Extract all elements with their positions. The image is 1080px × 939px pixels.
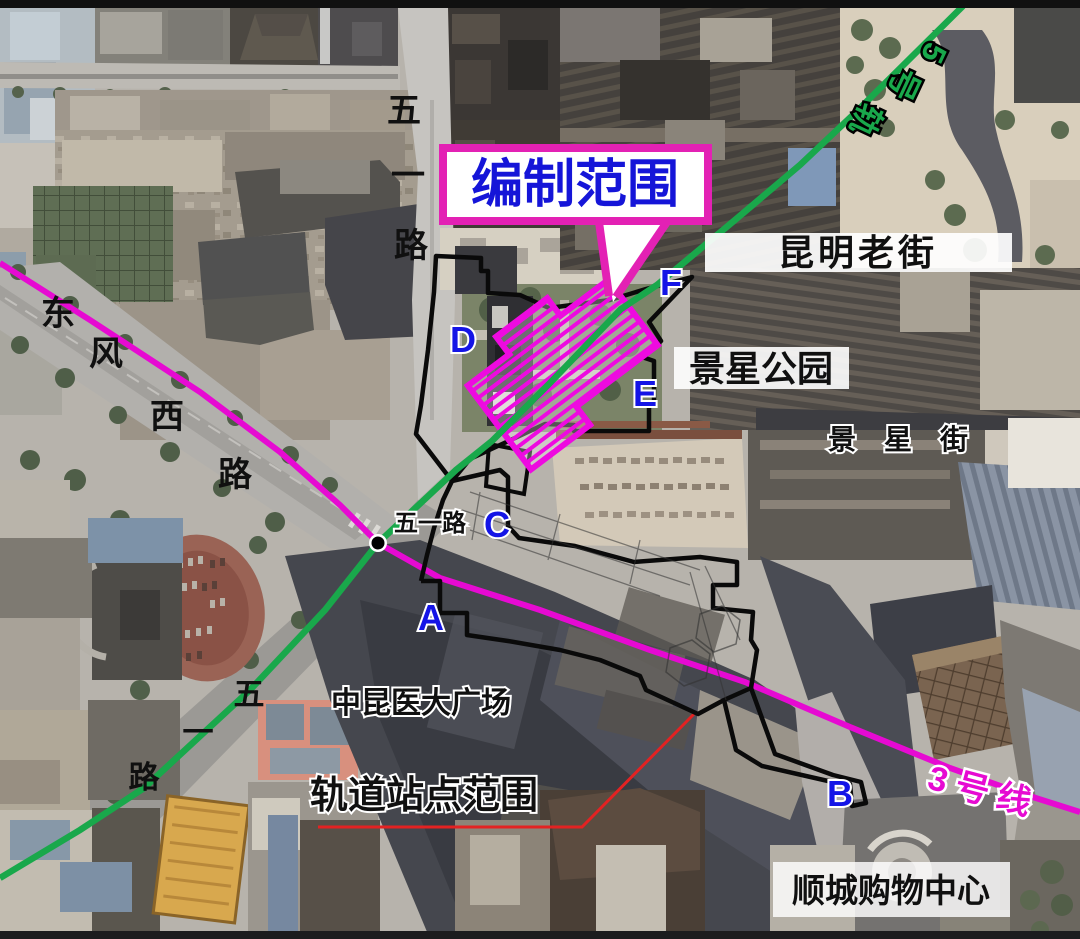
svg-text:东: 东 bbox=[41, 294, 75, 333]
svg-text:路: 路 bbox=[129, 760, 161, 795]
svg-text:E: E bbox=[633, 373, 657, 414]
svg-text:A: A bbox=[418, 597, 444, 638]
svg-text:C: C bbox=[484, 504, 510, 545]
svg-text:轨道站点范围: 轨道站点范围 bbox=[310, 775, 538, 817]
svg-text:一: 一 bbox=[183, 715, 214, 750]
svg-text:F: F bbox=[660, 262, 682, 303]
svg-text:路: 路 bbox=[394, 227, 429, 265]
svg-text:D: D bbox=[450, 319, 476, 360]
svg-text:五: 五 bbox=[234, 677, 265, 712]
svg-text:编制范围: 编制范围 bbox=[471, 156, 679, 214]
svg-text:景星街: 景星街 bbox=[828, 423, 996, 455]
svg-text:五: 五 bbox=[387, 92, 421, 130]
svg-text:五一路: 五一路 bbox=[394, 509, 467, 537]
svg-text:路: 路 bbox=[218, 456, 253, 494]
svg-text:B: B bbox=[827, 773, 853, 814]
svg-text:昆明老街: 昆明老街 bbox=[778, 232, 938, 273]
svg-text:风: 风 bbox=[89, 335, 123, 373]
svg-text:西: 西 bbox=[150, 398, 184, 436]
svg-text:景星公园: 景星公园 bbox=[689, 348, 833, 389]
svg-text:一: 一 bbox=[391, 157, 425, 195]
svg-text:顺城购物中心: 顺城购物中心 bbox=[792, 872, 990, 909]
svg-text:中昆医大广场: 中昆医大广场 bbox=[331, 687, 511, 720]
